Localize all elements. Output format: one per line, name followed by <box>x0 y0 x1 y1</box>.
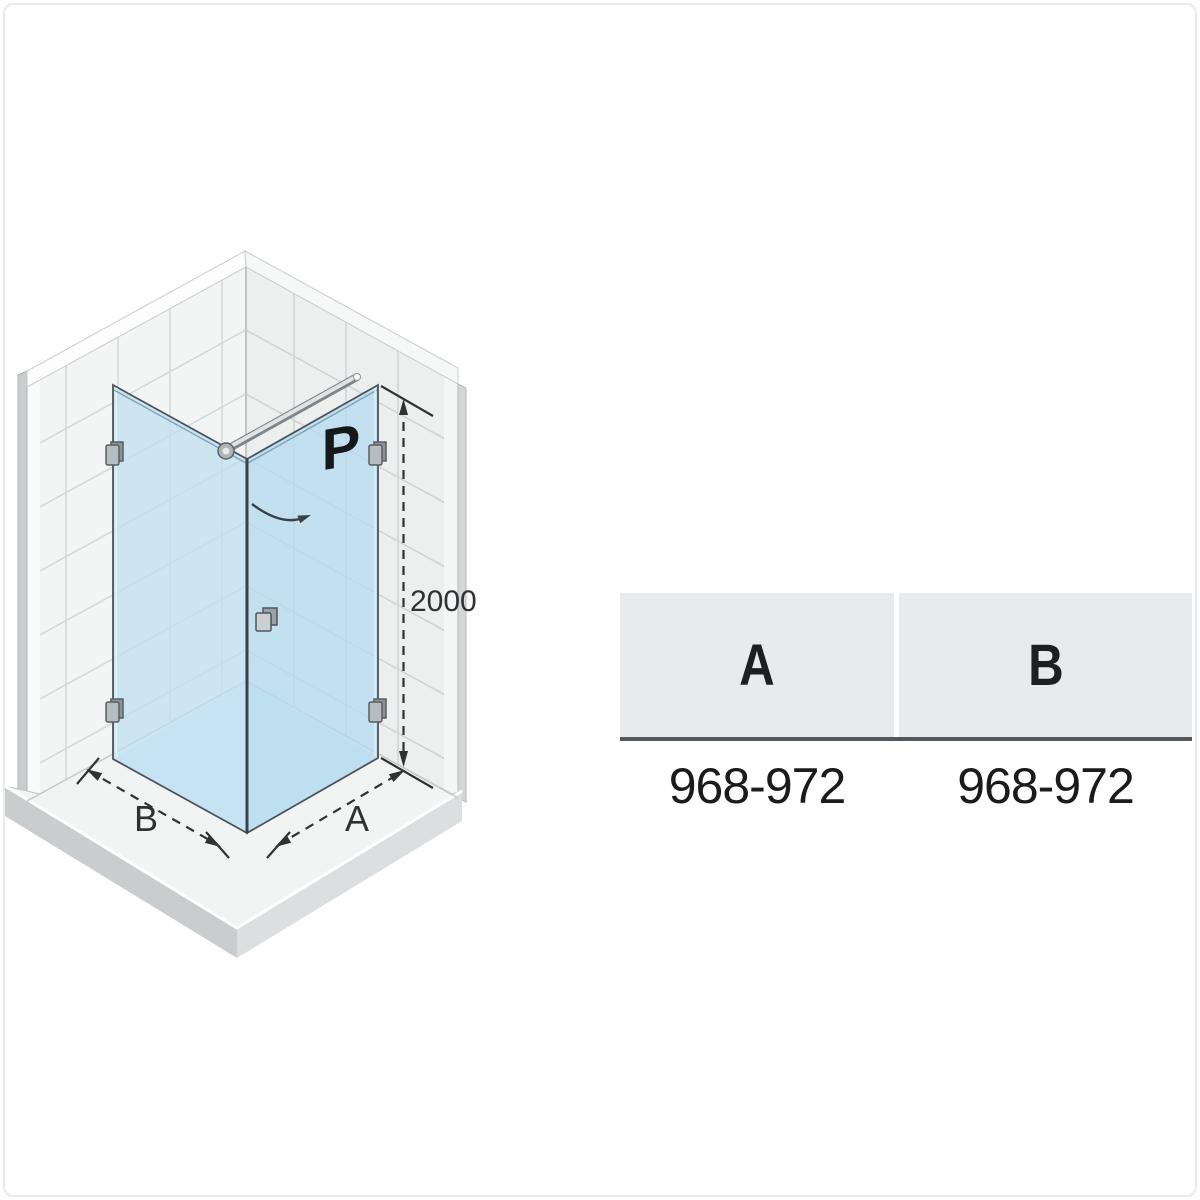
dimension-a-label: A <box>345 798 369 839</box>
wall-clamp <box>106 699 123 722</box>
dimensions-table: A B 968-972 968-972 <box>620 593 1192 817</box>
door-model-label: P <box>322 412 361 483</box>
table-header-b: B <box>1028 632 1064 699</box>
wall-clamp <box>106 442 123 465</box>
wall-clamp <box>369 699 386 722</box>
table-header-a: A <box>739 632 775 699</box>
table-value-b: 968-972 <box>899 741 1192 817</box>
dimension-b-label: B <box>134 798 158 839</box>
table-header-cell-a: A <box>620 593 894 737</box>
left-wall-end-face <box>18 371 27 806</box>
dimension-height-label: 2000 <box>410 585 477 618</box>
wall-clamp <box>369 442 386 465</box>
table-header-cell-b: B <box>899 593 1192 737</box>
left-wall-edge-highlight <box>27 364 40 801</box>
bar-wall-mount <box>354 374 361 381</box>
product-diagram-page: P 2000 B A <box>0 0 1200 1200</box>
table-value-a: 968-972 <box>620 741 894 817</box>
